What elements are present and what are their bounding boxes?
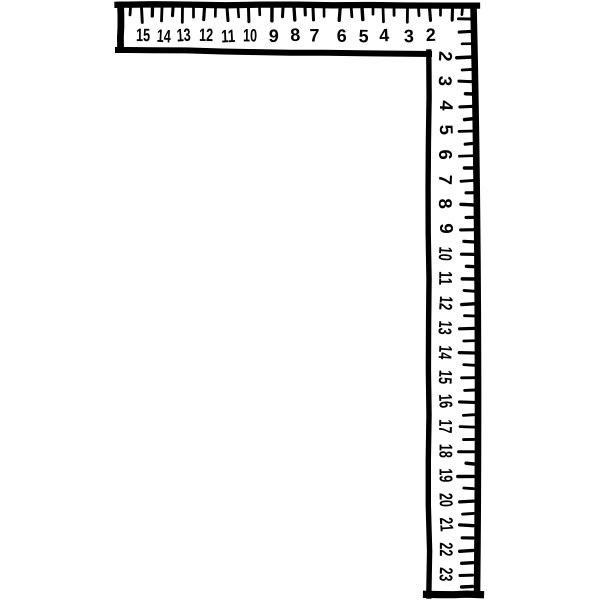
svg-text:12: 12 (435, 295, 457, 310)
svg-text:11: 11 (221, 26, 236, 47)
svg-text:6: 6 (337, 26, 347, 46)
svg-text:20: 20 (436, 493, 457, 508)
svg-text:5: 5 (436, 124, 457, 135)
svg-text:7: 7 (309, 25, 319, 45)
svg-text:4: 4 (436, 100, 458, 112)
svg-text:18: 18 (435, 444, 456, 458)
svg-text:5: 5 (358, 26, 369, 46)
svg-text:15: 15 (136, 25, 150, 45)
svg-text:11: 11 (435, 271, 456, 285)
svg-text:10: 10 (243, 25, 257, 45)
svg-text:19: 19 (435, 468, 456, 482)
svg-text:21: 21 (436, 517, 458, 532)
svg-text:16: 16 (435, 393, 457, 408)
svg-text:8: 8 (435, 198, 457, 210)
svg-text:14: 14 (435, 345, 457, 361)
svg-text:13: 13 (176, 25, 191, 46)
svg-text:14: 14 (156, 26, 171, 47)
svg-text:10: 10 (435, 246, 457, 261)
svg-text:6: 6 (435, 149, 456, 159)
svg-text:3: 3 (404, 26, 414, 46)
svg-text:4: 4 (379, 25, 390, 46)
svg-text:12: 12 (199, 25, 213, 45)
svg-text:3: 3 (435, 75, 456, 86)
svg-text:9: 9 (268, 26, 279, 46)
svg-text:8: 8 (290, 25, 301, 45)
svg-text:17: 17 (435, 419, 456, 434)
svg-text:15: 15 (435, 369, 457, 384)
svg-text:7: 7 (435, 174, 456, 185)
svg-text:23: 23 (436, 567, 457, 582)
svg-text:13: 13 (434, 320, 456, 335)
svg-text:9: 9 (436, 223, 457, 234)
svg-text:2: 2 (425, 25, 436, 45)
svg-text:22: 22 (436, 542, 457, 556)
svg-text:2: 2 (435, 51, 456, 62)
